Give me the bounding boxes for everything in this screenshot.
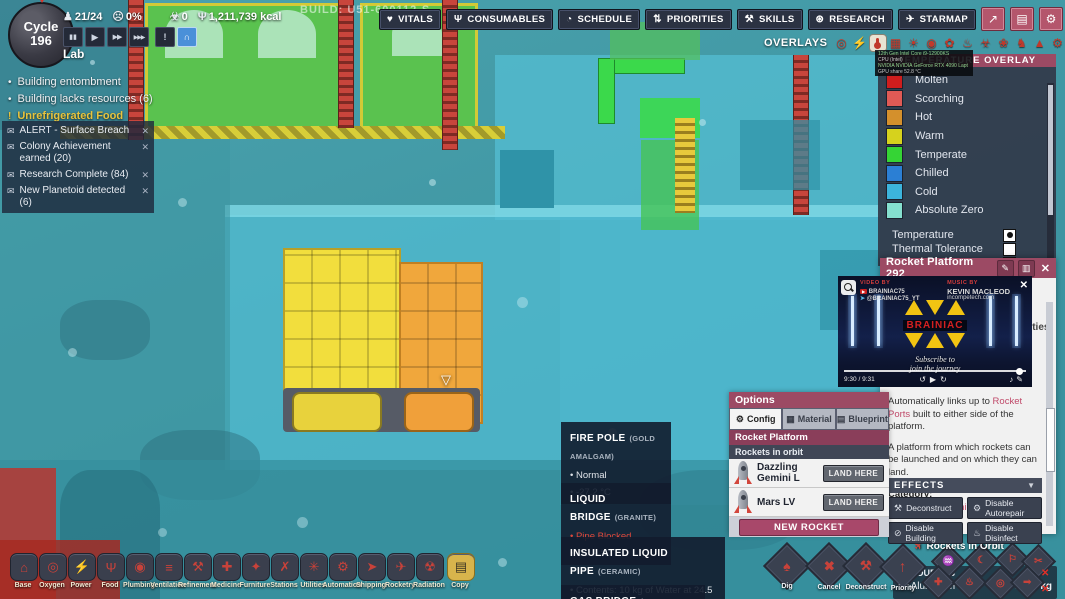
legend-label: Hot [915,111,932,123]
planetoid-name[interactable]: Lab [63,47,84,61]
rocket-row: Dazzling Gemini L LAND HERE [729,459,889,488]
mode-thermal-tolerance[interactable]: Thermal Tolerance [878,242,1056,256]
faucet-icon: ◉ [134,559,145,575]
skills-button[interactable]: ⚒SKILLS [737,9,803,30]
gear-icon: ⚙ [736,414,744,425]
envelope-icon: ✉ [7,125,15,137]
legend-row: Cold [878,183,1056,202]
message-item[interactable]: ✉Colony Achievement earned (20)✕ [2,139,154,167]
options-title: Options [729,392,889,408]
no-entry-icon: ⊘ [894,528,902,539]
consumables-button[interactable]: ΨCONSUMABLES [446,9,553,30]
speed3-button[interactable]: ▶▶▶ [129,27,149,47]
alert-button[interactable]: ! [155,27,175,47]
microscope-icon: ✗ [280,559,291,575]
notification-item[interactable]: •Building lacks resources (6) [8,93,153,110]
disable-disinfect-button[interactable]: ♨Disable Disinfect [967,522,1042,544]
category-furniture[interactable]: ✦ [242,553,270,581]
mop-icon: ♒ [942,556,954,567]
gpu-sub: GPU share 52.8 °C [878,69,970,75]
warning-triangle-icon [905,333,923,348]
priorities-button[interactable]: ⇅PRIORITIES [645,9,732,30]
category-utilities[interactable]: ✳ [300,553,328,581]
legend-swatch [886,109,903,126]
rocket-icon: ✈ [906,14,915,25]
copy-icon: ▤ [455,559,467,575]
system-stats-overlay: 12th Gen Intel Core i9-12900KS CPU (Inte… [875,50,973,76]
copy-label: Copy [438,582,482,589]
scrollbar-thumb[interactable] [1046,408,1055,472]
tank-yellow [292,392,382,432]
ladder [338,0,354,128]
up-arrow-icon: ↑ [899,559,907,576]
fan-icon: ✳ [309,559,320,575]
land-here-button[interactable]: LAND HERE [823,465,884,482]
plumbing-overlay-icon[interactable]: ◉ [924,35,940,51]
category-stations[interactable]: ✗ [271,553,299,581]
reports-button[interactable]: ↗ [981,7,1005,31]
selection-marker: ▽ [441,372,451,388]
legend-swatch [886,128,903,145]
bubbles-decoration [90,60,95,65]
overlays-label: OVERLAYS [764,37,828,49]
stress-icon: ☹ [112,11,123,23]
fork-icon: Ψ [106,560,117,575]
warning-triangle-icon [926,333,944,348]
bullet-icon: • [8,77,12,88]
warning-triangle-icon [947,333,965,348]
category-power[interactable]: ⚡ [68,553,96,581]
magnifier-button[interactable] [841,280,856,295]
stress-stat[interactable]: ☹0% [112,10,141,23]
tool-label: Priority [873,585,933,592]
oxygen-overlay-icon[interactable]: ◎ [834,35,850,51]
rename-button[interactable]: ✎ [997,260,1014,277]
legend-row: Absolute Zero [878,201,1056,220]
light-overlay-icon[interactable]: ☀ [906,35,922,51]
yellow-ladder [675,118,695,213]
rocket-row: Mars LV LAND HERE [729,488,889,517]
thermometer-icon [875,38,880,49]
livestock-overlay-icon[interactable]: ♞ [1014,35,1030,51]
category-refinement[interactable]: ⚒ [184,553,212,581]
replay-icon[interactable]: ↺ [919,375,930,384]
clock-icon: ◔ [566,14,572,25]
duplicant-count[interactable]: ♟21/24 [63,10,102,23]
options-tabs: ⚙Config ▦Material ▤Blueprint [729,408,889,430]
legend-label: Absolute Zero [915,204,983,216]
farming-overlay-icon[interactable]: ❀ [996,35,1012,51]
message-item[interactable]: ✉ALERT - Surface Breach✕ [2,123,154,139]
play-icon[interactable]: ▶ [930,375,940,384]
materials-overlay-icon[interactable]: ▦ [888,35,904,51]
tools-icon: ⚙ [973,503,981,514]
message-list: ✉ALERT - Surface Breach✕ ✉Colony Achieve… [2,121,154,213]
detail-panel-header: Rocket Platform 292 ✎ ▥ ✕ [880,258,1056,278]
forward-icon[interactable]: ↻ [940,375,951,384]
speed-controls: ▮▮ ▶ ▶▶ ▶▶▶ ! ∩ [63,27,197,47]
disable-building-button[interactable]: ⊘Disable Building [888,522,963,544]
category-base[interactable]: ⌂ [10,553,38,581]
video-overlay[interactable]: VIDEO BY ▶ BRAINIAC75 ➤ @BRAINIAC75_YT M… [838,276,1032,387]
legend-label: Chilled [915,167,949,179]
game-screen: ▽ Cycle 196 ♟21/24 ☹0% ☣0 Ψ1,211,739 kca… [0,0,1065,599]
legend-row: Temperate [878,145,1056,164]
lamp-icon: ✦ [251,559,262,575]
temperature-overlay-panel: TEMPERATURE OVERLAY Molten Scorching Hot… [878,54,1056,266]
germs-overlay-icon[interactable]: ☣ [978,35,994,51]
message-item[interactable]: ✉Research Complete (84)✕ [2,167,154,183]
deconstruct-button[interactable]: ⚒Deconstruct [888,497,963,519]
scrollbar-thumb[interactable] [1048,85,1053,215]
atom-icon: ⊛ [816,14,825,25]
scissors-icon: ✂ [1034,556,1042,567]
card-icon: ▥ [1022,263,1031,274]
envelope-icon: ✉ [7,169,15,181]
lightning-icon: ⚡ [74,559,90,575]
rocket-name: Mars LV [757,497,818,508]
legend-swatch [886,202,903,219]
arrow-icon: ➟ [1023,577,1031,588]
decor-overlay-icon[interactable]: ✿ [942,35,958,51]
tab-blueprint[interactable]: ▤Blueprint [836,408,889,430]
options-footer: NEW ROCKET [729,517,889,537]
notification-list: •Building entombment •Building lacks res… [8,76,153,127]
blueprint-icon: ▤ [837,414,846,425]
copy-building-button[interactable]: ▤ [447,553,475,581]
sickle-icon: ☾ [977,555,986,566]
bullet-icon: • [8,94,12,105]
notification-item[interactable]: •Building entombment [8,76,153,93]
new-rocket-button[interactable]: NEW ROCKET [739,519,879,536]
legend-swatch [886,90,903,107]
vitals-button[interactable]: ♥VITALS [379,9,441,30]
category-rocketry[interactable]: ✈ [387,553,415,581]
remove-row-icon[interactable]: ✕ [1041,568,1049,579]
screenshot-mode-button[interactable]: ∩ [177,27,197,47]
germ-icon: ☣ [170,11,180,23]
hammer-icon: ⚒ [860,558,872,574]
food-overlay-icon[interactable]: ♨ [960,35,976,51]
video-close-button[interactable]: ✕ [1020,280,1028,291]
suits-overlay-icon[interactable]: ▲ [1032,35,1048,51]
codex-entry-button[interactable]: ▥ [1018,260,1035,277]
heart-icon: ♥ [387,14,393,25]
schedule-button[interactable]: ◔SCHEDULE [558,9,640,30]
top-menu: ♥VITALS ΨCONSUMABLES ◔SCHEDULE ⇅PRIORITI… [379,7,1063,31]
pencil-icon: ✎ [1002,263,1010,274]
terrain-block [60,300,150,360]
pause-button[interactable]: ▮▮ [63,27,83,47]
speed2-button[interactable]: ▶▶ [107,27,127,47]
category-automation[interactable]: ⚙ [329,553,357,581]
tools-icon: ⚒ [745,14,754,25]
rockets-in-orbit-header: Rockets in orbit [729,445,889,459]
anvil-icon: ⚒ [192,559,204,575]
envelope-icon: ✉ [7,141,15,153]
play-button[interactable]: ▶ [85,27,105,47]
home-icon: ⌂ [20,560,28,575]
warning-triangle-icon [926,300,944,315]
category-food[interactable]: Ψ [97,553,125,581]
scrollbar[interactable] [1047,83,1054,262]
legend-row: Hot [878,108,1056,127]
mode-temperature[interactable]: Temperature [878,228,1056,242]
flag-icon: ⚐ [1008,554,1017,565]
temperature-overlay-icon[interactable] [870,35,886,51]
legend-row: Warm [878,127,1056,146]
legend-row: Chilled [878,164,1056,183]
category-oxygen[interactable]: ◎ [39,553,67,581]
close-icon[interactable]: ✕ [141,185,149,197]
video-progress-bar[interactable] [844,370,1026,372]
cross-icon: ✚ [222,559,233,575]
tile-icon: ▦ [786,414,795,425]
warning-triangle-icon [905,300,923,315]
food-icon: Ψ [198,11,207,23]
vent-icon: ≡ [165,560,173,575]
message-item[interactable]: ✉New Planetoid detected (6)✕ [2,183,154,211]
pipe-icon: ◎ [996,578,1005,589]
radio-icon[interactable] [1003,243,1016,256]
flask-icon: ♨ [973,528,981,539]
legend-swatch [886,183,903,200]
logo-text: BRAINIAC [903,320,968,331]
rocket-icon [734,489,752,515]
tank-orange [404,392,474,432]
cross-icon: ✚ [934,577,942,588]
scrollbar[interactable] [1046,302,1053,526]
legend-label: Cold [915,186,938,198]
machine-block [740,120,820,190]
machine-block [500,150,554,208]
gear-icon: ⚙ [1046,12,1057,26]
legend-row: Scorching [878,90,1056,109]
radiation-icon: ☢ [424,559,436,575]
bubble-icon: ◎ [47,559,58,575]
brainiac-logo: BRAINIAC [838,300,1032,348]
disable-autorepair-button[interactable]: ⚙Disable Autorepair [967,497,1042,519]
close-icon[interactable]: ✕ [141,169,149,181]
circuit-icon: ⚙ [337,559,349,575]
category-plumbing[interactable]: ◉ [126,553,154,581]
legend-label: Warm [915,130,944,142]
double-arrow-icon: ⇅ [653,14,662,25]
rocket-name: Dazzling Gemini L [757,462,818,484]
tab-material[interactable]: ▦Material [782,408,835,430]
close-icon[interactable]: ✕ [141,141,149,153]
colony-stats: ♟21/24 ☹0% ☣0 Ψ1,211,739 kcal [63,10,281,23]
rocket-icon [734,460,752,486]
legend-label: Molten [915,74,948,86]
automation-overlay-icon[interactable]: ⚙ [1050,35,1065,51]
chart-icon: ↗ [988,12,998,26]
close-icon[interactable]: ✕ [141,125,149,137]
legend-label: Temperate [915,149,967,161]
duplicant-icon: ♟ [63,11,73,23]
category-shipping[interactable]: ➤ [358,553,386,581]
green-pipe [598,58,615,124]
flag-icon [36,0,48,3]
options-panel: Options ⚙Config ▦Material ▤Blueprint Roc… [729,392,889,535]
broom-icon: ♨ [965,577,974,588]
tab-config[interactable]: ⚙Config [729,408,782,430]
warning-triangle-icon [947,300,965,315]
legend-swatch [886,146,903,163]
land-here-button[interactable]: LAND HERE [823,494,884,511]
starmap-button[interactable]: ✈STARMAP [898,9,976,30]
research-button[interactable]: ⊛RESEARCH [808,9,893,30]
close-panel-button[interactable]: ✕ [1041,262,1050,275]
codex-button[interactable]: ▤ [1010,7,1034,31]
tooltip-gas-bridge: GAS BRIDGE(IGNEOUS ROCK) [561,585,705,599]
overlays-bar: OVERLAYS ◎ ⚡ ▦ ☀ ◉ ✿ ♨ ☣ ❀ ♞ ▲ ⚙ ➤ ☢ [764,35,1065,51]
germ-stat[interactable]: ☣0 [170,10,188,23]
legend-swatch [886,165,903,182]
envelope-icon: ✉ [7,185,15,197]
chevron-down-icon: ▼ [1027,478,1036,493]
category-radiation[interactable]: ☢ [416,553,444,581]
utensils-icon: Ψ [454,14,462,25]
category-ventilation[interactable]: ≡ [155,553,183,581]
power-overlay-icon[interactable]: ⚡ [852,35,868,51]
video-controls: 9:30 / 9:31 ↺▶↻ ♪✎ [844,375,1026,384]
action-buttons: ⚒Deconstruct ⚙Disable Autorepair ⊘Disabl… [888,497,1042,544]
conveyor-icon: ➤ [367,559,378,575]
calorie-stat[interactable]: Ψ1,211,739 kcal [198,11,282,23]
effects-header[interactable]: EFFECTS▼ [888,478,1042,493]
tooltip-line: • Normal [570,470,662,481]
x-icon: ✖ [824,558,835,574]
youtube-icon: ▶ [860,289,867,294]
legend-label: Scorching [915,93,964,105]
remove-row-icon[interactable]: ✕ [1041,584,1049,595]
radio-icon[interactable] [1003,229,1016,242]
progress-handle[interactable] [1016,368,1023,375]
category-medicine[interactable]: ✚ [213,553,241,581]
settings-button[interactable]: ⚙ [1039,7,1063,31]
hammer-icon: ⚒ [894,503,902,514]
book-icon: ▤ [1016,12,1027,26]
building-name-bar: Rocket Platform [729,430,889,445]
shovel-icon: ♠ [783,558,790,574]
rocket-icon: ✈ [396,559,407,575]
